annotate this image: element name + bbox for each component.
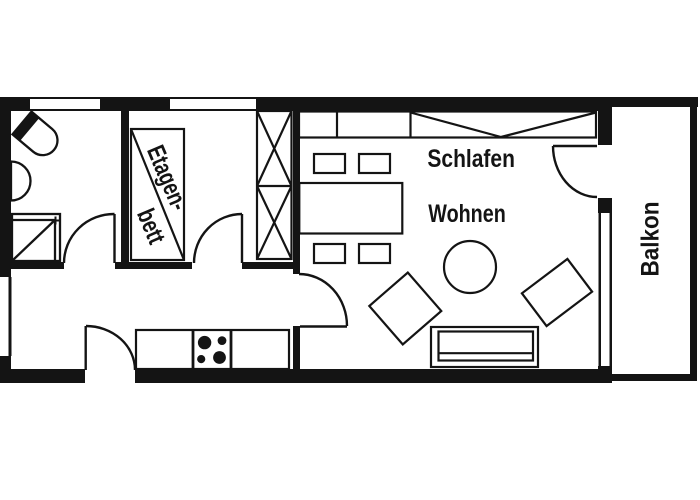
svg-text:Balkon: Balkon: [636, 202, 664, 277]
svg-text:Wohnen: Wohnen: [428, 200, 505, 228]
svg-text:Schlafen: Schlafen: [427, 144, 515, 172]
